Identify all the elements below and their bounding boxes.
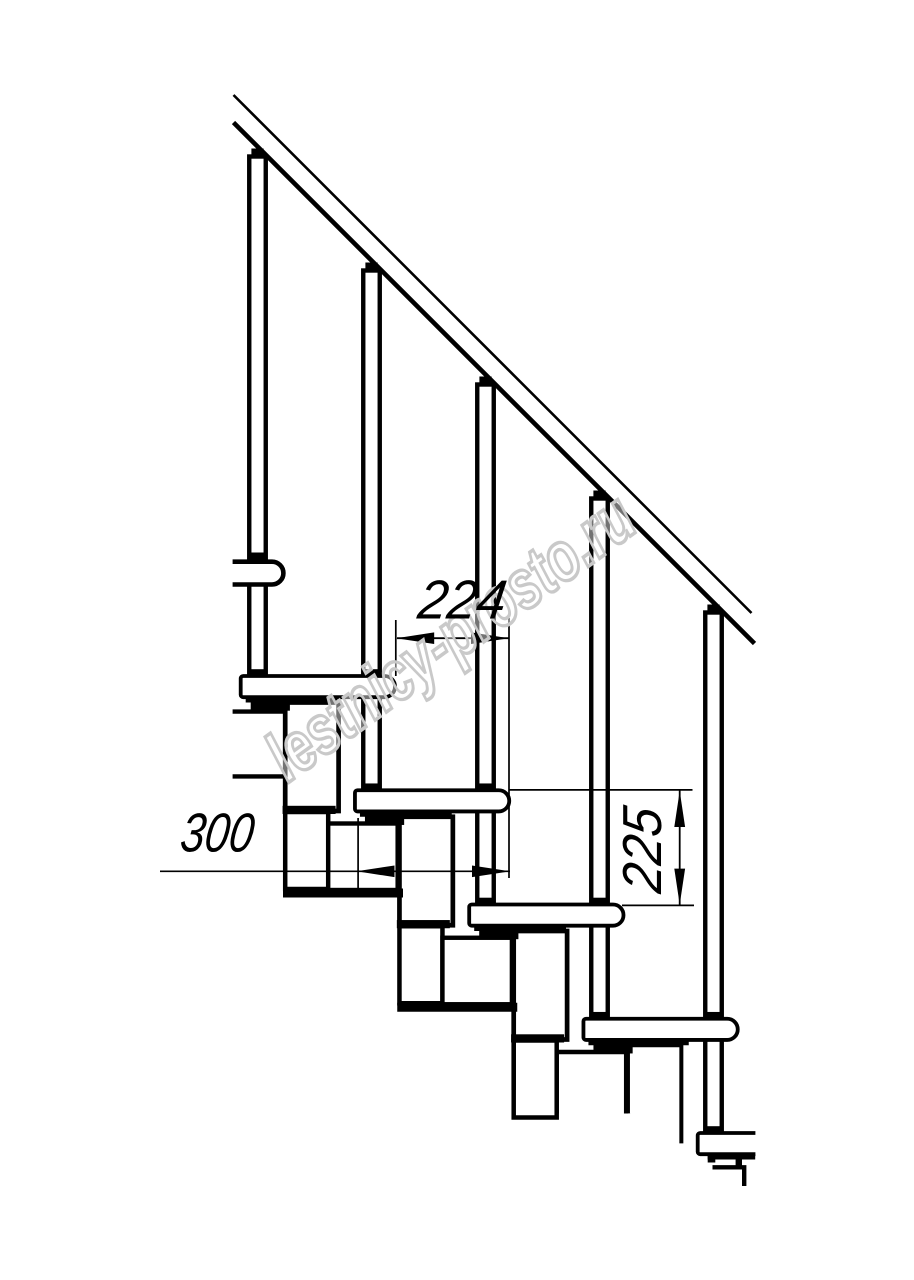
svg-text:300: 300 (177, 802, 258, 864)
svg-text:225: 225 (612, 803, 673, 897)
svg-text:224: 224 (414, 570, 511, 631)
